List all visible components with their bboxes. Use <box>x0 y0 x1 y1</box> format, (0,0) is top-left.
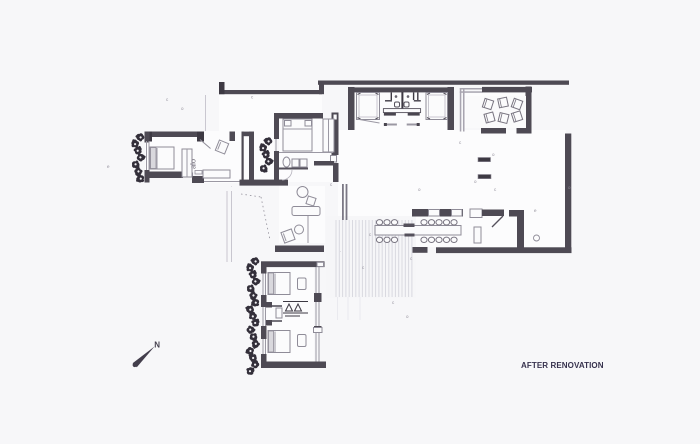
svg-text:.: . <box>340 248 341 253</box>
svg-text:.: . <box>231 183 232 188</box>
svg-text:AFTER RENOVATION: AFTER RENOVATION <box>521 361 604 370</box>
svg-text:alo: alo <box>189 159 198 169</box>
svg-text:N: N <box>154 341 160 350</box>
